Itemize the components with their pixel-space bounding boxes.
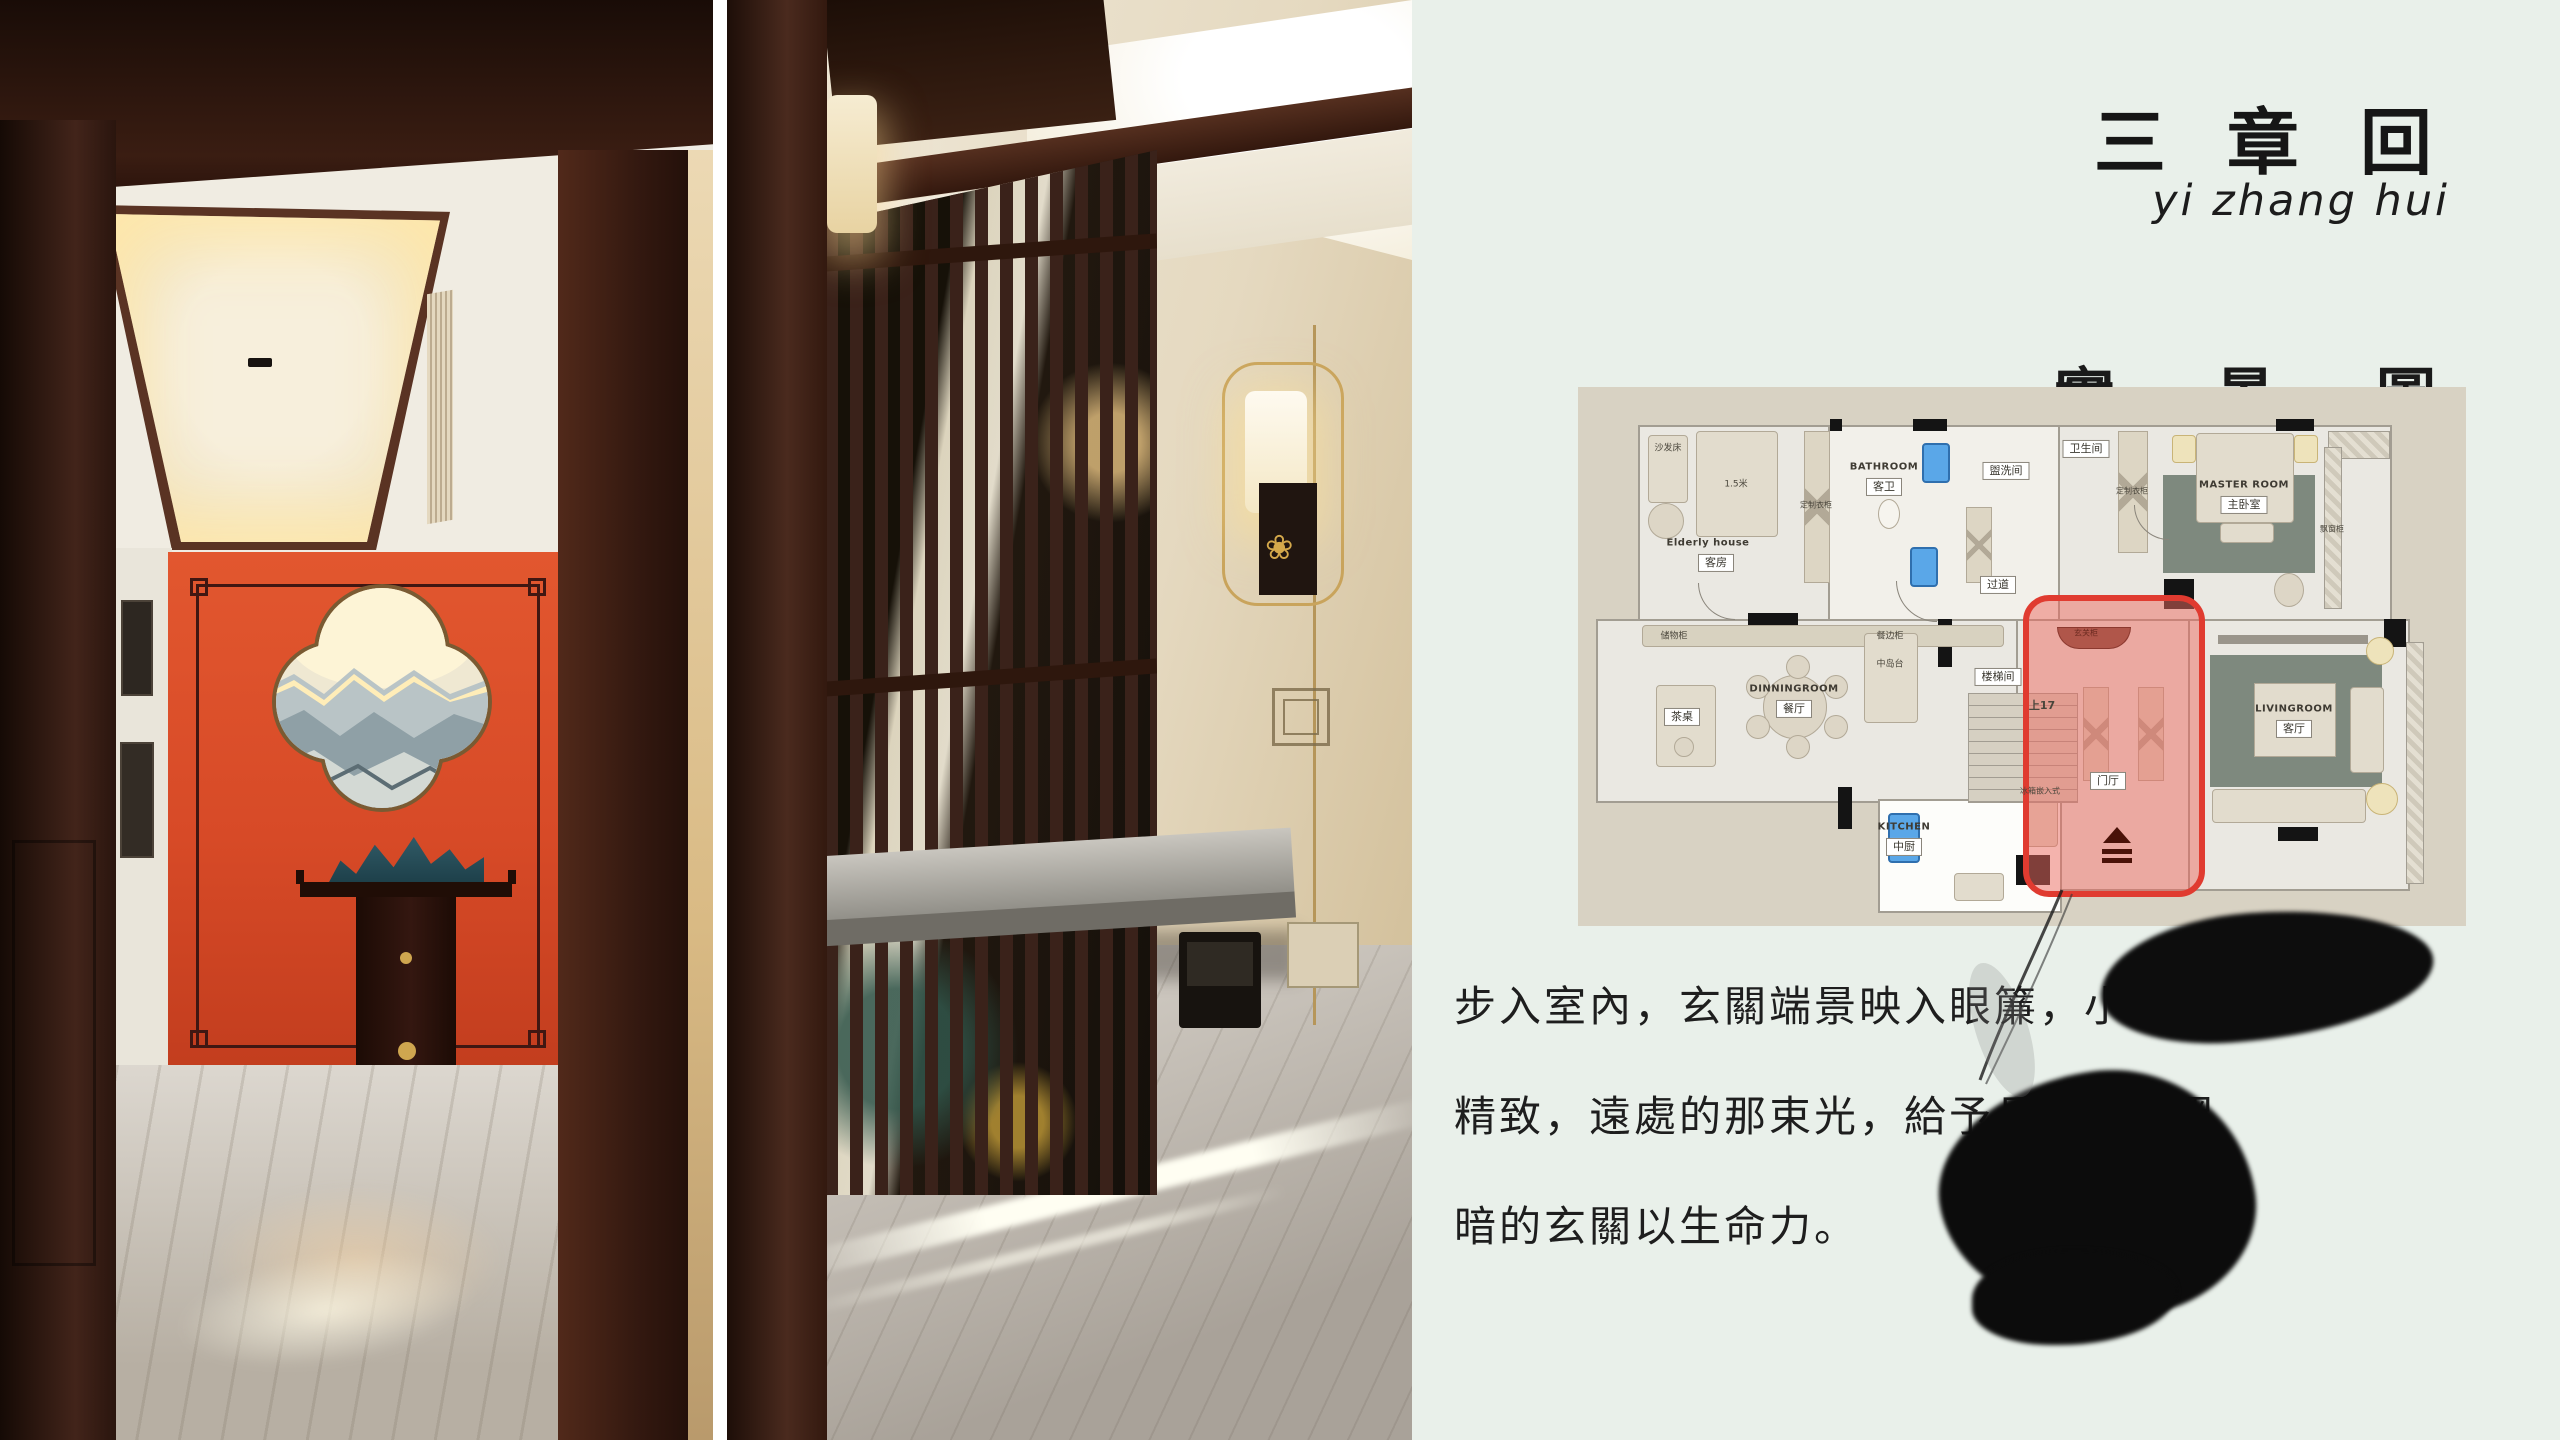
nightstand <box>2172 435 2196 463</box>
label-sofa-bed: 沙发床 <box>1654 441 1681 454</box>
console-flared-end <box>508 870 516 884</box>
label-bathroom-cn: 客卫 <box>1866 478 1902 496</box>
wall-sconce-lamp: ❀ <box>1222 362 1344 606</box>
cylinder-lamp <box>827 95 877 233</box>
label-living-cn: 客厅 <box>2276 720 2312 738</box>
bed-bench <box>2220 523 2274 543</box>
tea-stool <box>1674 737 1694 757</box>
entrance-arrow-icon <box>2103 827 2131 843</box>
ink-brush-streak <box>1882 880 2262 1180</box>
label-entry-cabinet: 玄关柜 <box>2074 628 2098 639</box>
label-stairs-up17: 上17 <box>2029 697 2055 713</box>
ceiling-spotlight <box>248 358 272 367</box>
label-storage: 储物柜 <box>1660 629 1687 642</box>
side-table <box>2366 783 2398 815</box>
label-sideboard: 餐边柜 <box>1876 629 1903 642</box>
label-wardrobe-2: 定制衣柜 <box>2116 486 2148 497</box>
label-wardrobe-1: 定制衣柜 <box>1800 500 1832 511</box>
ink-blot <box>1972 1250 2177 1345</box>
wall-art-frame <box>121 600 153 696</box>
washbasin <box>1922 443 1950 483</box>
sideboard-strip <box>1642 625 2004 647</box>
label-elderly-en: Elderly house <box>1667 538 1750 549</box>
wood-lattice-screen <box>825 150 1157 1195</box>
photo-entry-hallway <box>0 0 713 1440</box>
round-table <box>1648 503 1684 539</box>
label-tea-table: 茶桌 <box>1664 708 1700 726</box>
wall-art-frame <box>120 742 154 858</box>
quatrefoil-mountain-art <box>262 578 502 824</box>
dining-chair <box>1786 735 1810 759</box>
label-dining-en: DINNINGROOM <box>1749 684 1838 695</box>
lit-wall-edge <box>688 150 713 1440</box>
label-toilet: 卫生间 <box>2063 440 2110 458</box>
fret-corner-knot <box>190 1030 208 1048</box>
label-entry-hall: 门厅 <box>2090 772 2126 790</box>
label-fridge: 冰箱嵌入式 <box>2020 786 2060 797</box>
gold-orchid-motif: ❀ <box>1265 531 1294 565</box>
fret-corner-knot <box>528 1030 546 1048</box>
ac-grille <box>427 290 453 525</box>
fret-emblem <box>1272 688 1330 746</box>
entrance-arrow-bar <box>2102 849 2132 854</box>
label-kitchen-en: KITCHEN <box>1878 822 1931 833</box>
label-island: 中岛台 <box>1876 657 1903 670</box>
lamp-backplate: ❀ <box>1259 483 1317 595</box>
label-bed-size: 1.5米 <box>1724 477 1747 490</box>
brand-title: 三 章 回 <box>2094 84 2450 189</box>
console-table-top <box>300 882 512 897</box>
intercom-panel <box>1179 932 1261 1028</box>
toilet <box>1878 499 1900 529</box>
fret-corner-knot <box>190 578 208 596</box>
label-dining-cn: 餐厅 <box>1776 700 1812 718</box>
label-stairwell: 楼梯间 <box>1975 668 2022 686</box>
right-wood-doorframe <box>558 150 688 1440</box>
left-wood-pillar <box>727 0 827 1440</box>
info-panel: 三 章 回 yi zhang hui 實 景 圖 <box>1412 0 2560 1440</box>
balcony-strip <box>2406 642 2424 884</box>
brass-knob <box>400 952 412 964</box>
label-laundry: 盥洗间 <box>1983 462 2030 480</box>
dining-chair <box>1824 715 1848 739</box>
side-table <box>2366 637 2394 665</box>
wood-panel-frame <box>12 840 96 1266</box>
light-switch <box>1287 922 1359 988</box>
entry-highlight-zone <box>2023 595 2205 897</box>
island-counter <box>1864 633 1918 723</box>
tv-console <box>2218 635 2368 644</box>
label-kitchen-cn: 中厨 <box>1886 838 1922 856</box>
brass-knob <box>398 1042 416 1060</box>
poster-page: ❀ 三 章 回 yi zhang hui 實 景 圖 <box>0 0 2560 1440</box>
floor-plan: Elderly house 客房 BATHROOM 客卫 盥洗间 卫生间 MAS… <box>1578 387 2466 926</box>
dining-chair <box>1786 655 1810 679</box>
photo-lattice-screen: ❀ <box>727 0 1412 1440</box>
brand-pinyin: yi zhang hui <box>2152 176 2450 226</box>
fret-corner-knot <box>528 578 546 596</box>
label-baywindow-cab: 飘窗柜 <box>2320 524 2344 535</box>
console-flared-end <box>296 870 304 884</box>
cabinet <box>1966 507 1992 583</box>
label-elderly-cn: 客房 <box>1698 554 1734 572</box>
armchair <box>2274 573 2304 607</box>
nightstand <box>2294 435 2318 463</box>
sofa <box>2212 789 2366 823</box>
armchair-sofa <box>2350 687 2384 773</box>
label-master-en: MASTER ROOM <box>2199 480 2289 491</box>
label-living-en: LIVINGROOM <box>2255 704 2333 715</box>
dining-chair <box>1746 715 1770 739</box>
label-bathroom-en: BATHROOM <box>1850 462 1918 473</box>
label-master-cn: 主卧室 <box>2221 496 2268 514</box>
label-corridor: 过道 <box>1980 576 2016 594</box>
entrance-arrow-bar <box>2102 858 2132 863</box>
